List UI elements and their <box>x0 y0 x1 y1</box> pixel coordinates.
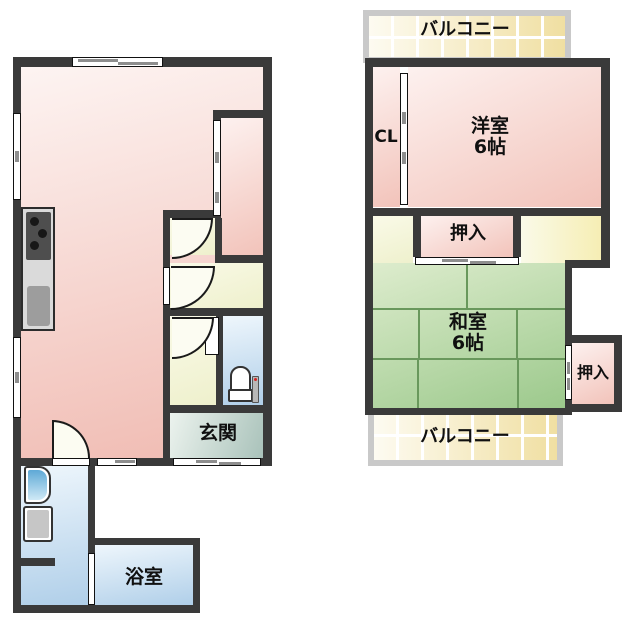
japanese-room-name: 和室 <box>449 311 487 333</box>
hallway-2f-right <box>521 216 601 263</box>
wall-2f-top <box>365 58 610 67</box>
wall-oshiire-top-left <box>413 216 421 257</box>
wall-storage-bottom <box>215 255 272 263</box>
door-handle <box>219 462 241 465</box>
stove-burner <box>30 217 39 226</box>
balcony-bottom-label: バルコニー <box>385 427 545 447</box>
wall-hall-left <box>163 210 170 466</box>
window-sash <box>78 59 118 62</box>
stove-burner <box>30 241 39 250</box>
tatami-line <box>466 263 468 308</box>
wall-1f-left-lower <box>13 466 21 613</box>
entrance-door <box>173 458 261 466</box>
tatami-line <box>517 358 519 408</box>
toilet-tank <box>228 389 253 402</box>
wall-1f-bottom-lower <box>13 605 200 613</box>
wall-oshiire-top-right <box>513 216 521 257</box>
entrance-label: 玄関 <box>180 423 256 444</box>
kitchen-sink <box>27 286 50 326</box>
tatami-line <box>373 358 565 360</box>
japanese-room-label: 和室 6帖 <box>418 312 518 355</box>
balcony-top-label: バルコニー <box>395 20 535 40</box>
oshiire-side-label: 押入 <box>570 364 616 382</box>
toilet-control-light <box>254 378 257 381</box>
stove-burner <box>38 229 47 238</box>
wall-2f-left <box>365 58 373 415</box>
door-handle <box>442 259 468 262</box>
western-room-name: 洋室 <box>471 115 509 137</box>
oshiire-top-label: 押入 <box>430 224 506 244</box>
washing-machine-tub <box>27 510 49 538</box>
wall-2f-mid <box>365 208 610 216</box>
bath-sliding-door <box>88 553 95 605</box>
tatami-line <box>417 358 419 408</box>
window-sash <box>118 62 158 65</box>
window-sash <box>15 372 19 383</box>
wall-oshiire-side-bottom <box>565 404 622 412</box>
door-handle <box>215 192 219 203</box>
door-handle <box>402 152 406 164</box>
door-handle <box>402 112 406 124</box>
wash-basin-bowl <box>28 470 47 500</box>
japanese-room-size: 6帖 <box>452 332 484 354</box>
tatami-line <box>373 308 565 310</box>
wall-storage-top <box>213 110 272 118</box>
window-sash <box>15 151 19 162</box>
wall-2f-step <box>565 260 610 268</box>
door-handle <box>215 152 219 163</box>
door-handle <box>196 460 217 463</box>
western-room-size: 6帖 <box>474 136 506 158</box>
wall-2f-right-upper <box>601 58 610 268</box>
wall-washroom-stub <box>21 558 55 566</box>
opening-living-washroom <box>52 458 90 466</box>
bathroom-label: 浴室 <box>106 567 182 588</box>
opening-hall-b <box>163 267 170 305</box>
closet-cl-label: CL <box>369 128 403 147</box>
wall-toilet-top <box>170 308 272 316</box>
wall-hall-divider-a <box>215 218 222 263</box>
western-room-label: 洋室 6帖 <box>440 116 540 159</box>
door-handle <box>470 261 496 264</box>
wall-entrance-top <box>168 405 272 413</box>
storage-room-1f <box>221 118 263 255</box>
hallway-2f-left <box>373 216 413 265</box>
wall-2f-bottom <box>365 408 572 415</box>
door-handle <box>115 460 135 463</box>
wall-bath-right <box>193 538 200 613</box>
floor-plan: バルコニー CL 洋室 6帖 押入 和室 6帖 押入 バルコニー <box>0 0 628 626</box>
wall-bath-top <box>88 538 200 545</box>
